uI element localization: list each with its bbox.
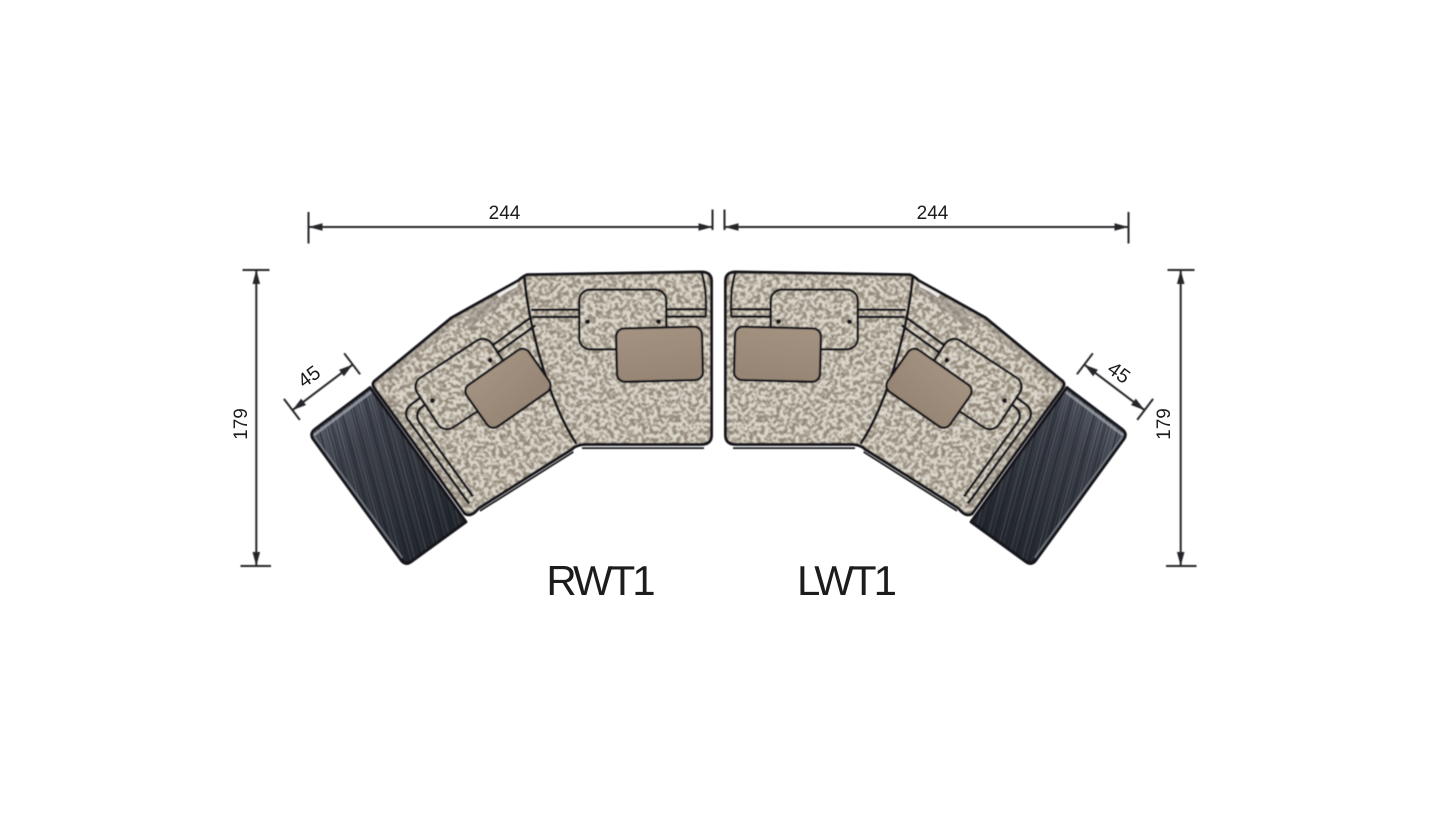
svg-text:RWT1: RWT1 [546,557,654,604]
svg-text:LWT1: LWT1 [797,557,896,604]
svg-text:179: 179 [231,408,252,440]
svg-text:244: 244 [917,203,949,224]
svg-text:179: 179 [1154,408,1175,440]
svg-text:244: 244 [489,203,521,224]
